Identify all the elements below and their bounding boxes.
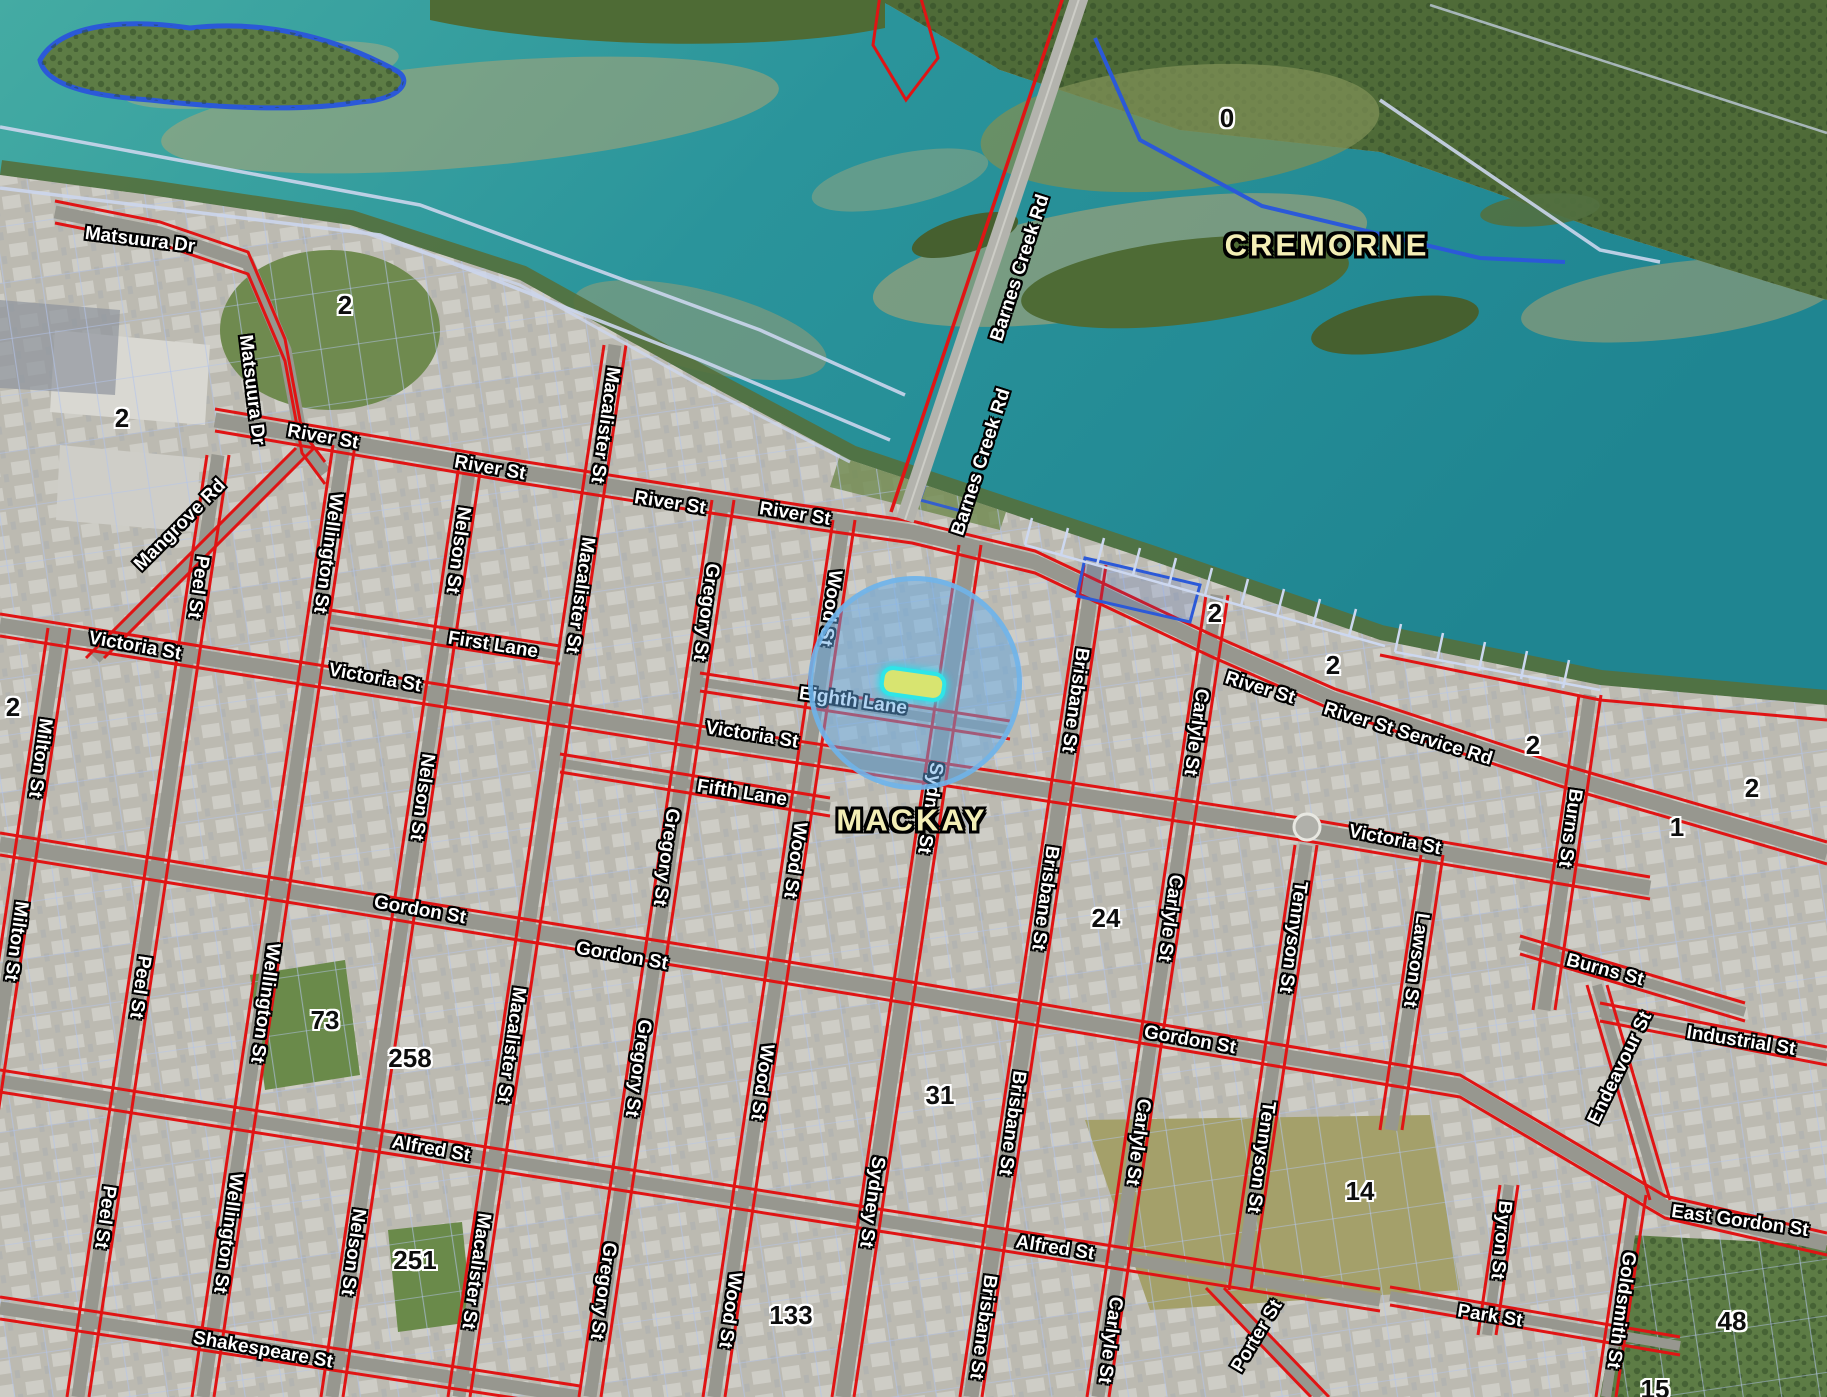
map-viewport[interactable]: Matsuura DrMatsuura DrRiver StRiver StRi…: [0, 0, 1827, 1397]
satellite-map-canvas[interactable]: [0, 0, 1827, 1397]
roundabout: [1294, 814, 1320, 840]
